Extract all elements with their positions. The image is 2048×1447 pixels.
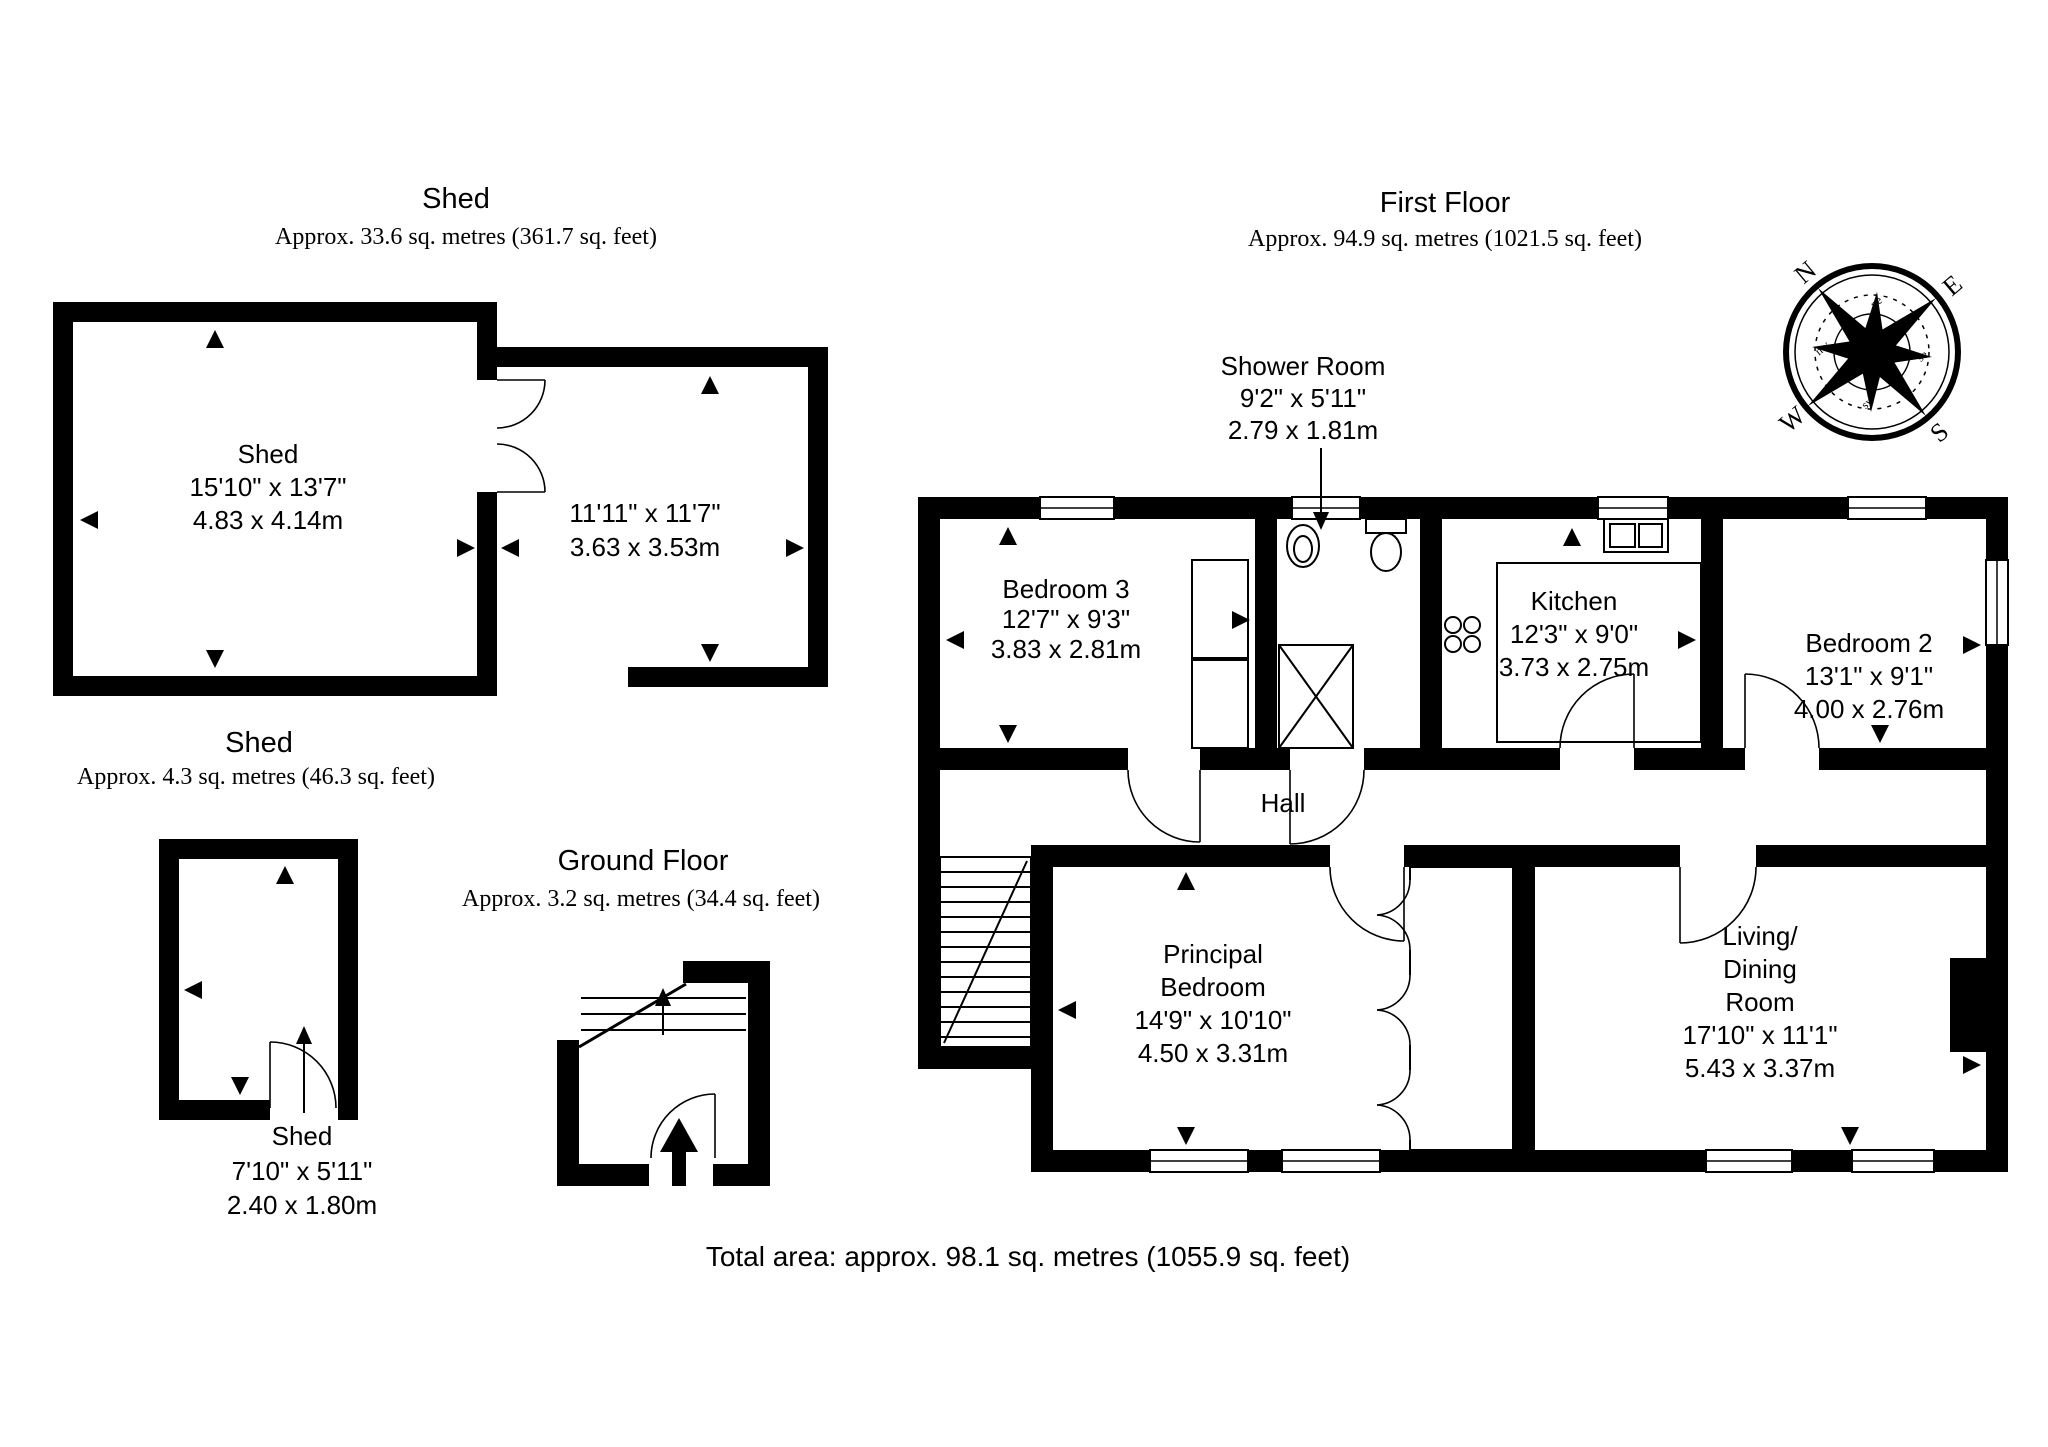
- bedroom2-label: Bedroom 2 13'1" x 9'1" 4.00 x 2.76m: [1794, 628, 1944, 724]
- shed-top-double-door: [497, 380, 545, 492]
- bedroom3-metric: 3.83 x 2.81m: [991, 634, 1141, 664]
- compass-ne-label: ne: [1867, 293, 1885, 311]
- kitchen-sink: [1604, 519, 1668, 552]
- principal-metric: 4.50 x 3.31m: [1138, 1038, 1288, 1068]
- first-floor-title: First Floor: [1380, 187, 1511, 219]
- shed-second-metric: 3.63 x 3.53m: [570, 532, 720, 562]
- kitchen-hob: [1445, 617, 1480, 652]
- wardrobe-bifold-doors: [1377, 867, 1513, 1150]
- shed-small-title: Shed: [225, 727, 293, 759]
- shower-room-name: Shower Room: [1221, 351, 1386, 381]
- ground-floor-entrance-arrow: [660, 1118, 698, 1186]
- shed-small-dimension-markers: [184, 866, 294, 1095]
- shed-main-metric: 4.83 x 4.14m: [193, 505, 343, 535]
- shed-second-label: 11'11" x 11'7" 3.63 x 3.53m: [569, 498, 720, 562]
- principal-bedroom-label: Principal Bedroom 14'9" x 10'10" 4.50 x …: [1134, 939, 1291, 1068]
- kitchen-door: [1560, 674, 1634, 748]
- compass-s-label: S: [1924, 417, 1954, 449]
- principal-line1: Principal: [1163, 939, 1263, 969]
- ground-floor-stairs: [579, 984, 746, 1047]
- living-line2: Dining: [1723, 954, 1797, 984]
- shed-small-room-label: Shed 7'10" x 5'11" 2.40 x 1.80m: [227, 1121, 377, 1220]
- living-imperial: 17'10" x 11'1": [1682, 1020, 1837, 1050]
- bedroom3-name: Bedroom 3: [1002, 574, 1129, 604]
- shed-main-name: Shed: [238, 439, 299, 469]
- hall-label: Hall: [1261, 788, 1306, 818]
- living-line1: Living/: [1722, 921, 1798, 951]
- bedroom2-name: Bedroom 2: [1805, 628, 1932, 658]
- bedroom3-label: Bedroom 3 12'7" x 9'3" 3.83 x 2.81m: [991, 574, 1141, 664]
- first-floor-stairs: [940, 857, 1031, 1047]
- first-floor-subtitle: Approx. 94.9 sq. metres (1021.5 sq. feet…: [1248, 226, 1642, 252]
- kitchen-metric: 3.73 x 2.75m: [1499, 652, 1649, 682]
- ground-floor-title: Ground Floor: [558, 845, 729, 877]
- bedroom2-imperial: 13'1" x 9'1": [1805, 661, 1933, 691]
- living-metric: 5.43 x 3.37m: [1685, 1053, 1835, 1083]
- toilet: [1366, 519, 1406, 571]
- compass-nw-label: nw: [1812, 338, 1832, 358]
- shed-small-subtitle: Approx. 4.3 sq. metres (46.3 sq. feet): [77, 764, 435, 790]
- shower-room-imperial: 9'2" x 5'11": [1240, 383, 1366, 413]
- shed-main-label: Shed 15'10" x 13'7" 4.83 x 4.14m: [189, 439, 346, 535]
- living-dining-label: Living/ Dining Room 17'10" x 11'1" 5.43 …: [1682, 921, 1837, 1083]
- shower-cubicle: [1279, 645, 1353, 748]
- principal-line2: Bedroom: [1160, 972, 1266, 1002]
- shed-small-name: Shed: [272, 1121, 333, 1151]
- kitchen-name: Kitchen: [1531, 586, 1618, 616]
- shed-top-title: Shed: [422, 183, 490, 215]
- shower-room-label: Shower Room 9'2" x 5'11" 2.79 x 1.81m: [1221, 351, 1386, 445]
- compass-rose: N E S W ne se sw nw: [1774, 255, 1968, 448]
- shed-main-imperial: 15'10" x 13'7": [189, 472, 346, 502]
- kitchen-label: Kitchen 12'3" x 9'0" 3.73 x 2.75m: [1499, 586, 1649, 682]
- chimney-breast: [1950, 958, 1986, 1052]
- bedroom3-cupboards: [1192, 560, 1248, 748]
- living-line3: Room: [1725, 987, 1794, 1017]
- ground-floor-subtitle: Approx. 3.2 sq. metres (34.4 sq. feet): [462, 886, 820, 912]
- bedroom3-imperial: 12'7" x 9'3": [1002, 604, 1130, 634]
- shed-second-imperial: 11'11" x 11'7": [569, 498, 720, 528]
- shed-small-entrance-arrow: [296, 1026, 312, 1113]
- principal-imperial: 14'9" x 10'10": [1134, 1005, 1291, 1035]
- shed-small-imperial: 7'10" x 5'11": [232, 1156, 373, 1186]
- floor-plan-drawing: N E S W ne se sw nw Shed Approx. 33.6 sq…: [0, 0, 2048, 1447]
- bedroom2-metric: 4.00 x 2.76m: [1794, 694, 1944, 724]
- total-area-text: Total area: approx. 98.1 sq. metres (105…: [706, 1241, 1350, 1272]
- bedroom3-door: [1128, 770, 1200, 842]
- principal-bedroom-door: [1330, 867, 1404, 941]
- floor-plan-page: N E S W ne se sw nw Shed Approx. 33.6 sq…: [0, 0, 2048, 1447]
- kitchen-imperial: 12'3" x 9'0": [1510, 619, 1638, 649]
- shed-small-metric: 2.40 x 1.80m: [227, 1190, 377, 1220]
- shower-room-metric: 2.79 x 1.81m: [1228, 415, 1378, 445]
- shed-top-subtitle: Approx. 33.6 sq. metres (361.7 sq. feet): [275, 224, 657, 250]
- basin: [1287, 525, 1319, 567]
